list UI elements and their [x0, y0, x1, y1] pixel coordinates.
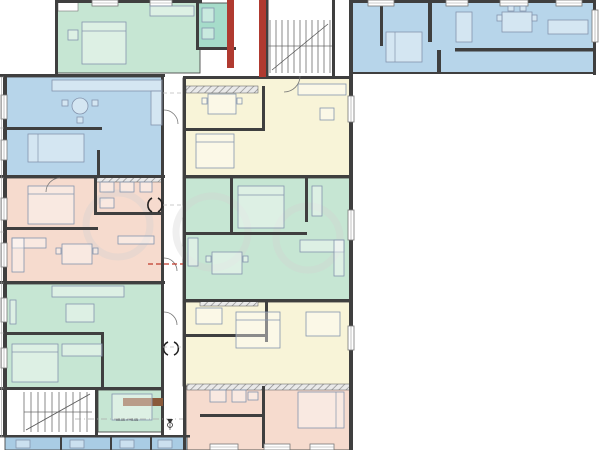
- floor-plan: ±0.00 = +0.05: [0, 0, 600, 450]
- plan-svg: ±0.00 = +0.05: [0, 0, 600, 450]
- elevation-label: ±0.00 = +0.05: [116, 418, 138, 422]
- staircase-top: [268, 20, 332, 73]
- red-core-walls: [227, 0, 266, 77]
- staircase-bottom: [24, 392, 92, 432]
